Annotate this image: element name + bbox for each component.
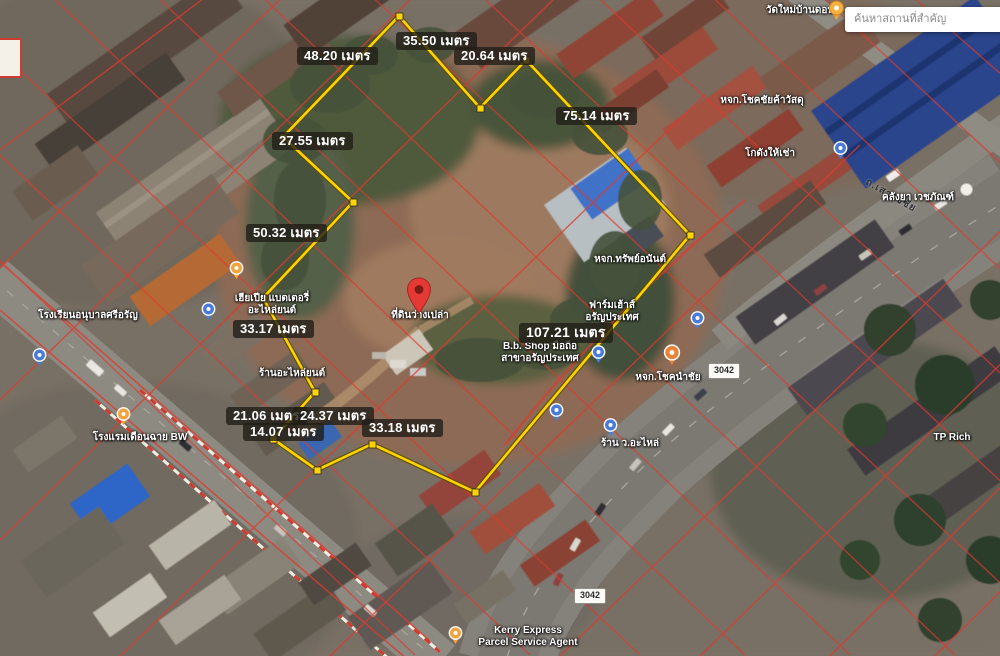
poi-label[interactable]: ร้านอะไหล่ยนต์: [259, 368, 325, 380]
measurement-label: 107.21 เมตร: [519, 323, 613, 343]
poi-label[interactable]: B.b. Shop มือถือ สาขาอรัญประเทศ: [501, 341, 579, 365]
poi-label[interactable]: โกดังให้เช่า: [745, 148, 795, 160]
poi-pin-temple[interactable]: [663, 344, 681, 371]
route-shield-3042: 3042: [574, 588, 606, 604]
poi-pin-blue[interactable]: [591, 345, 606, 369]
poi-label[interactable]: TP Rich: [933, 432, 970, 444]
measurement-label: 75.14 เมตร: [556, 107, 637, 125]
route-shield-3042: 3042: [708, 363, 740, 379]
poi-label-kerry-express[interactable]: Kerry Express Parcel Service Agent: [478, 625, 577, 649]
poi-label[interactable]: คลังยา เวชภัณฑ์: [882, 192, 954, 204]
poi-pin-kerry[interactable]: [448, 626, 463, 650]
poi-label[interactable]: เฮียเปีย แบตเตอรี่ อะไหล่ยนต์: [235, 293, 309, 317]
measurement-label: 33.17 เมตร: [233, 320, 314, 338]
measurement-label: 48.20 เมตร: [297, 47, 378, 65]
poi-label[interactable]: หจก.โชคนำชัย: [635, 372, 700, 384]
poi-label[interactable]: หจก.ทรัพย์อนันต์: [594, 254, 666, 266]
poi-label[interactable]: โรงเรียนอนุบาลศรีอรัญ: [38, 310, 138, 322]
poi-pin-blue[interactable]: [549, 403, 564, 427]
measurement-label: 14.07 เมตร: [243, 423, 324, 441]
main-location-pin[interactable]: [406, 277, 432, 320]
search-input[interactable]: ค้นหาสถานที่สำคัญ: [845, 7, 1000, 32]
measurement-label: 27.55 เมตร: [272, 132, 353, 150]
poi-pin-blue[interactable]: [833, 141, 848, 165]
satellite-map-view[interactable]: 48.20 เมตร 35.50 เมตร 20.64 เมตร 27.55 เ…: [0, 0, 1000, 656]
satellite-basemap[interactable]: [0, 0, 1000, 656]
poi-pin-amber[interactable]: [116, 407, 131, 431]
poi-pin-amber[interactable]: [229, 261, 244, 285]
survey-marker-box: [0, 38, 22, 78]
measurement-label: 33.18 เมตร: [362, 419, 443, 437]
poi-pin-blue[interactable]: [32, 348, 47, 372]
measurement-label: 20.64 เมตร: [454, 47, 535, 65]
poi-label[interactable]: ฟาร์มเฮ้าส์ อรัญประเทศ: [585, 300, 638, 324]
poi-label[interactable]: หจก.โชคชัยค้าวัสดุ: [720, 95, 803, 107]
poi-pin-blue[interactable]: [603, 418, 618, 442]
poi-label[interactable]: โรงแรมเดือนฉาย BW: [93, 432, 188, 444]
poi-label[interactable]: วัดใหม่บ้านดอน: [766, 5, 834, 17]
search-pin-icon: [828, 0, 845, 26]
transit-dot-icon: [960, 183, 973, 196]
poi-pin-blue[interactable]: [201, 302, 216, 326]
poi-pin-blue[interactable]: [690, 311, 705, 335]
measurement-label: 50.32 เมตร: [246, 224, 327, 242]
